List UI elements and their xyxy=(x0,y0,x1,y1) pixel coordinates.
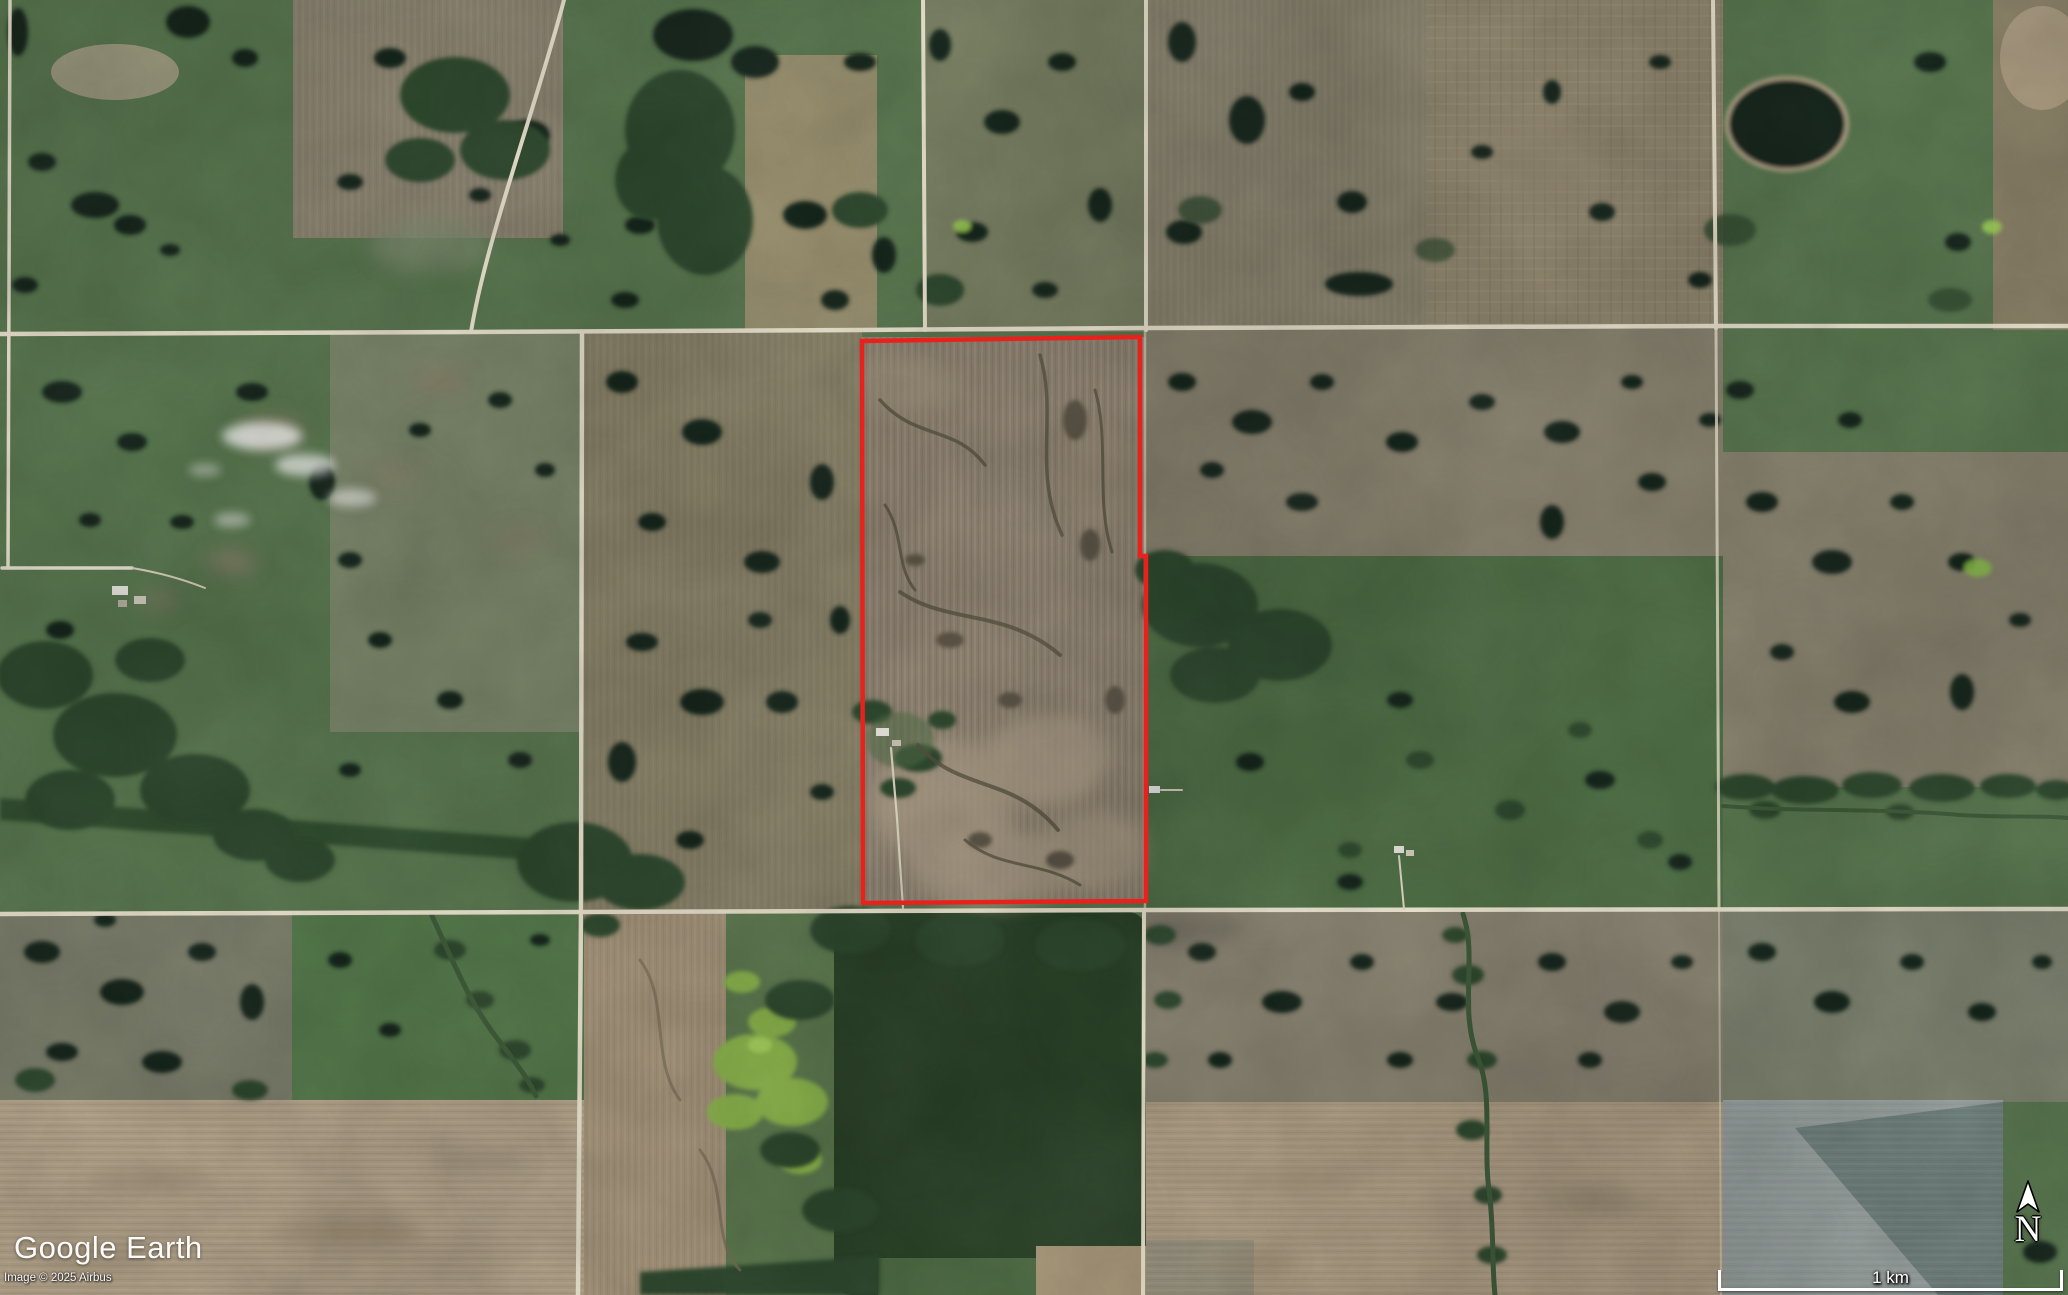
imagery-attribution: Image © 2025 Airbus xyxy=(4,1272,112,1284)
compass-north-label: N xyxy=(2006,1214,2050,1245)
satellite-map-canvas[interactable] xyxy=(0,0,2068,1295)
compass-north-control[interactable]: N xyxy=(2006,1180,2050,1245)
scale-bar: 1 km xyxy=(1718,1270,2063,1291)
google-earth-viewport[interactable]: Google Earth Image © 2025 Airbus N 1 km xyxy=(0,0,2068,1295)
imagery-grain-layer xyxy=(0,0,2068,1295)
scale-bar-label: 1 km xyxy=(1721,1268,2060,1288)
google-earth-logo: Google Earth xyxy=(14,1230,203,1266)
